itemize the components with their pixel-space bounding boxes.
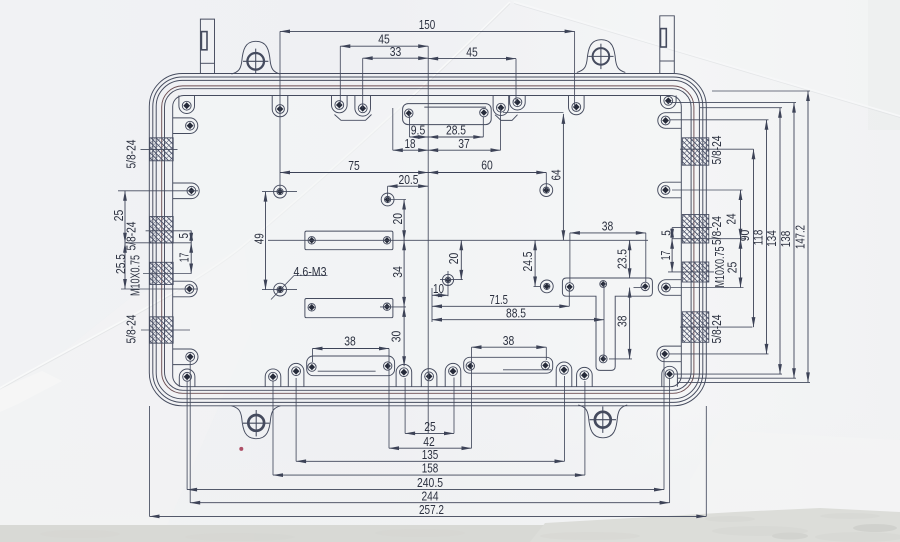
- svg-text:10: 10: [433, 281, 444, 296]
- svg-text:5/8-24: 5/8-24: [123, 140, 138, 169]
- svg-text:25: 25: [111, 210, 126, 222]
- svg-text:38: 38: [602, 219, 614, 234]
- svg-text:38: 38: [344, 333, 356, 348]
- svg-text:20: 20: [446, 253, 461, 265]
- svg-text:64: 64: [549, 170, 564, 181]
- svg-text:49: 49: [252, 233, 267, 244]
- svg-text:135: 135: [422, 447, 439, 462]
- svg-text:38: 38: [503, 333, 515, 348]
- svg-text:158: 158: [422, 461, 439, 476]
- svg-text:37: 37: [458, 136, 470, 151]
- svg-text:17: 17: [177, 253, 192, 263]
- svg-text:150: 150: [419, 17, 436, 32]
- svg-text:60: 60: [481, 158, 493, 173]
- svg-text:5/8-24: 5/8-24: [709, 136, 724, 165]
- svg-text:M10X0.75: M10X0.75: [128, 255, 143, 296]
- svg-text:134: 134: [764, 230, 779, 247]
- svg-text:24.5: 24.5: [520, 252, 535, 272]
- svg-text:45: 45: [378, 32, 390, 47]
- svg-text:5/8-24: 5/8-24: [709, 315, 724, 344]
- svg-text:23.5: 23.5: [615, 249, 630, 269]
- svg-text:33: 33: [390, 44, 402, 59]
- svg-text:45: 45: [466, 44, 478, 59]
- svg-text:25: 25: [424, 419, 436, 434]
- svg-text:75: 75: [348, 158, 360, 173]
- svg-text:25.5: 25.5: [113, 254, 128, 274]
- svg-text:5/8-24: 5/8-24: [123, 315, 138, 344]
- svg-text:5/8-24: 5/8-24: [709, 216, 724, 245]
- svg-text:30: 30: [389, 331, 404, 343]
- svg-text:17: 17: [658, 251, 673, 261]
- svg-text:25: 25: [725, 262, 740, 274]
- svg-text:24: 24: [724, 214, 739, 225]
- svg-text:5/8-24: 5/8-24: [123, 222, 138, 251]
- svg-text:34: 34: [390, 266, 405, 278]
- svg-text:18: 18: [405, 136, 416, 151]
- svg-text:88.5: 88.5: [506, 305, 526, 320]
- svg-text:20.5: 20.5: [399, 172, 419, 187]
- svg-text:38: 38: [614, 315, 629, 327]
- svg-text:5: 5: [176, 233, 191, 239]
- svg-text:4.6-M3: 4.6-M3: [294, 264, 327, 279]
- svg-text:138: 138: [778, 231, 793, 248]
- svg-text:257.2: 257.2: [419, 502, 444, 517]
- svg-text:147.2: 147.2: [793, 225, 808, 249]
- svg-text:5: 5: [659, 230, 674, 236]
- svg-text:20: 20: [390, 213, 405, 225]
